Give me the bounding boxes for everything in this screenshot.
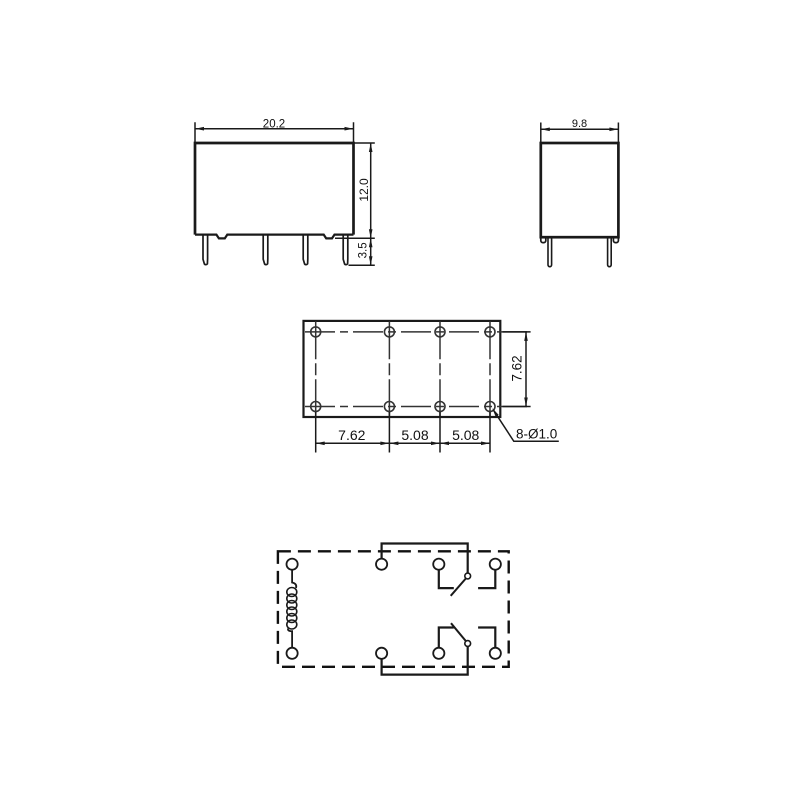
svg-text:9.8: 9.8 <box>572 118 587 130</box>
svg-text:20.2: 20.2 <box>263 118 285 130</box>
svg-text:12.0: 12.0 <box>357 178 371 202</box>
svg-text:5.08: 5.08 <box>401 427 428 443</box>
svg-text:5.08: 5.08 <box>452 427 479 443</box>
svg-text:8-Ø1.0: 8-Ø1.0 <box>516 427 557 442</box>
svg-text:7.62: 7.62 <box>338 427 365 443</box>
svg-text:3.5: 3.5 <box>358 242 370 258</box>
svg-text:7.62: 7.62 <box>510 355 525 381</box>
